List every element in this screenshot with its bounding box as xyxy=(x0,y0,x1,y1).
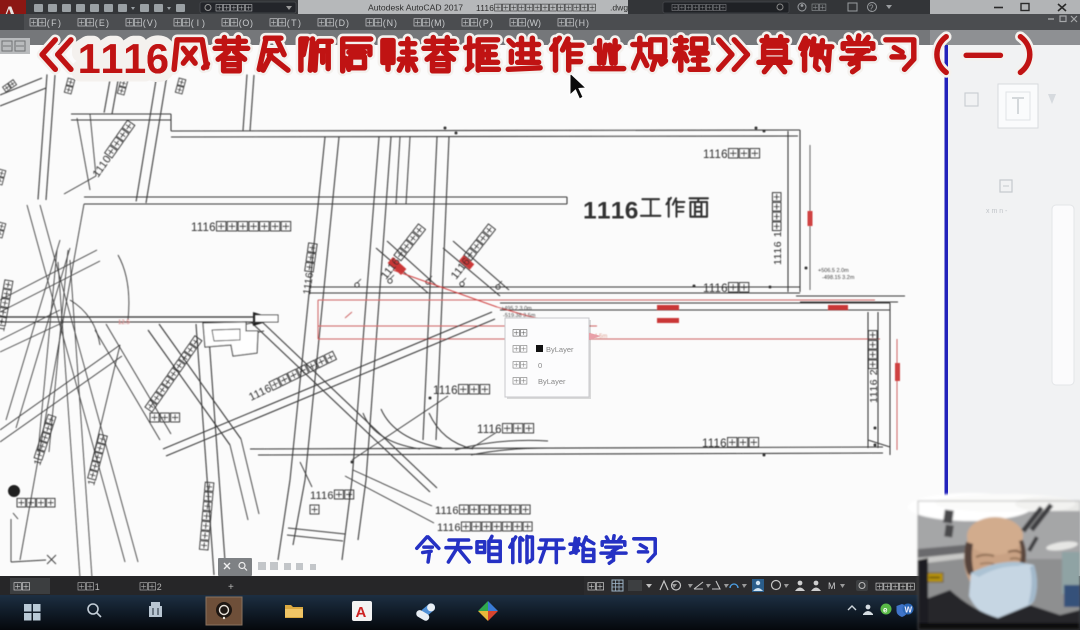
svg-text:+: + xyxy=(228,582,234,593)
svg-text:2: 2 xyxy=(157,582,162,592)
svg-text:1116: 1116 xyxy=(433,384,458,397)
svg-text:(P): (P) xyxy=(479,18,493,28)
svg-text:1116 2: 1116 2 xyxy=(868,369,880,403)
svg-text:1116: 1116 xyxy=(435,505,459,517)
svg-text:(M): (M) xyxy=(431,18,445,28)
svg-text:1116: 1116 xyxy=(477,423,502,436)
svg-text:(N): (N) xyxy=(383,18,397,28)
svg-text:+495.2 3.0m: +495.2 3.0m xyxy=(501,306,532,312)
svg-text:1116: 1116 xyxy=(702,437,727,450)
svg-text:1: 1 xyxy=(611,198,625,225)
svg-text:ByLayer: ByLayer xyxy=(538,377,566,386)
svg-text:(F): (F) xyxy=(47,18,61,28)
svg-text:1: 1 xyxy=(95,582,100,592)
svg-text:1: 1 xyxy=(597,198,611,225)
svg-text:A: A xyxy=(356,604,367,621)
svg-text:1: 1 xyxy=(101,36,124,82)
svg-text:.dwg: .dwg xyxy=(610,3,628,13)
svg-text:e: e xyxy=(883,606,888,615)
svg-text:(D): (D) xyxy=(335,18,349,28)
svg-text:1116: 1116 xyxy=(437,522,461,534)
svg-text:1116: 1116 xyxy=(310,490,334,502)
svg-text:1: 1 xyxy=(583,198,597,225)
svg-text:1116: 1116 xyxy=(703,148,728,161)
svg-text:Autodesk AutoCAD 2017: Autodesk AutoCAD 2017 xyxy=(368,3,463,13)
svg-text:-498.15 3.2m: -498.15 3.2m xyxy=(822,275,855,281)
svg-text:+506.5 2.0m: +506.5 2.0m xyxy=(818,268,849,274)
svg-text:M: M xyxy=(828,581,836,591)
svg-text:x m n -: x m n - xyxy=(986,208,1008,215)
svg-text:1: 1 xyxy=(123,36,146,82)
svg-text:ByLayer: ByLayer xyxy=(546,345,574,354)
svg-text:1116 1: 1116 1 xyxy=(772,231,784,265)
svg-text:(I): (I) xyxy=(191,18,205,28)
svg-text:0: 0 xyxy=(538,361,542,370)
svg-text:1116: 1116 xyxy=(191,221,216,234)
svg-text:(H): (H) xyxy=(575,18,589,28)
svg-text:?: ? xyxy=(869,4,874,13)
svg-text:6: 6 xyxy=(625,198,639,225)
svg-text:1116: 1116 xyxy=(476,3,494,13)
svg-text:(O): (O) xyxy=(239,18,253,28)
svg-text:(W): (W) xyxy=(527,18,541,28)
svg-text:(T): (T) xyxy=(287,18,301,28)
svg-text:(E): (E) xyxy=(95,18,109,28)
svg-text:(V): (V) xyxy=(143,18,157,28)
svg-text:1: 1 xyxy=(78,36,101,82)
svg-text:1116: 1116 xyxy=(703,282,728,295)
svg-text:W: W xyxy=(905,606,913,615)
svg-text:12.5: 12.5 xyxy=(118,320,130,326)
svg-text:6: 6 xyxy=(146,36,169,82)
